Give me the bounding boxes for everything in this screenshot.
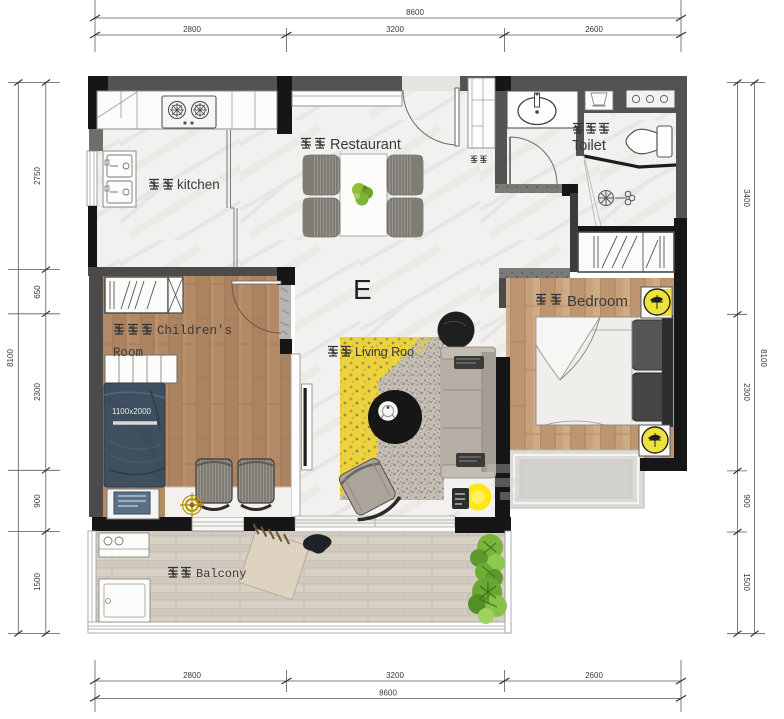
svg-text:900: 900 <box>33 494 42 508</box>
svg-text:2300: 2300 <box>33 383 42 401</box>
svg-text:2800: 2800 <box>183 25 201 34</box>
svg-text:650: 650 <box>33 285 42 299</box>
svg-text:2750: 2750 <box>33 167 42 185</box>
svg-text:900: 900 <box>742 494 751 508</box>
svg-text:8600: 8600 <box>406 8 424 17</box>
svg-text:Room: Room <box>113 346 143 360</box>
svg-text:2800: 2800 <box>183 671 201 680</box>
svg-text:E: E <box>353 274 372 305</box>
svg-text:2300: 2300 <box>742 383 751 401</box>
svg-text:8100: 8100 <box>6 349 15 367</box>
svg-text:2600: 2600 <box>585 25 603 34</box>
svg-text:3400: 3400 <box>742 189 751 207</box>
svg-text:3200: 3200 <box>386 25 404 34</box>
svg-text:Balcony: Balcony <box>196 567 246 581</box>
svg-text:8600: 8600 <box>379 688 397 697</box>
svg-text:Restaurant: Restaurant <box>330 137 401 153</box>
svg-text:Bedroom: Bedroom <box>567 293 628 310</box>
svg-text:8100: 8100 <box>759 349 768 367</box>
svg-text:3200: 3200 <box>386 671 404 680</box>
svg-text:Children's: Children's <box>157 324 232 338</box>
svg-text:Living Roo: Living Roo <box>355 345 414 359</box>
svg-text:1500: 1500 <box>742 573 751 591</box>
svg-text:1100x2000: 1100x2000 <box>112 407 152 416</box>
svg-text:2600: 2600 <box>585 671 603 680</box>
svg-text:kitchen: kitchen <box>177 177 220 192</box>
svg-text:1500: 1500 <box>33 573 42 591</box>
svg-text:Toilet: Toilet <box>572 138 606 154</box>
